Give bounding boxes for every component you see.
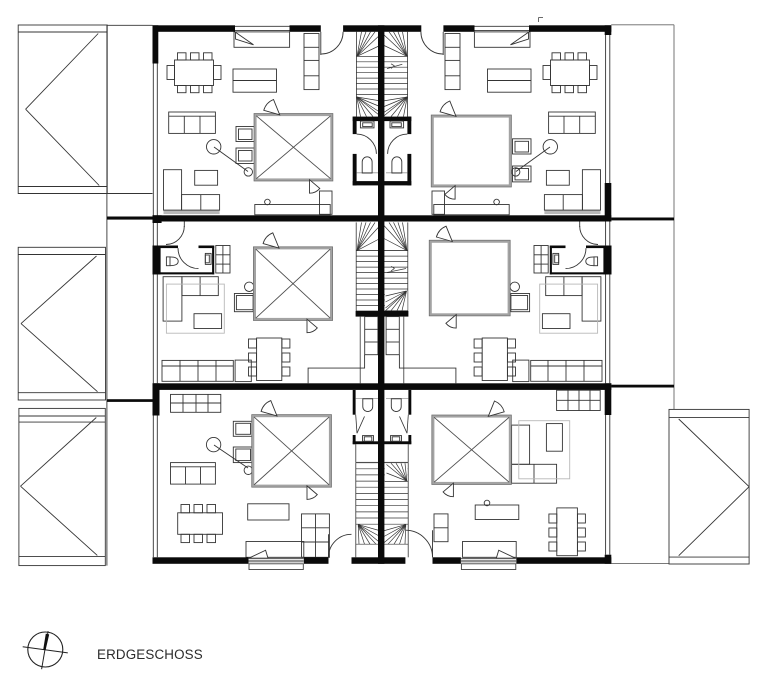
svg-text:ERDGESCHOSS: ERDGESCHOSS	[97, 647, 203, 662]
